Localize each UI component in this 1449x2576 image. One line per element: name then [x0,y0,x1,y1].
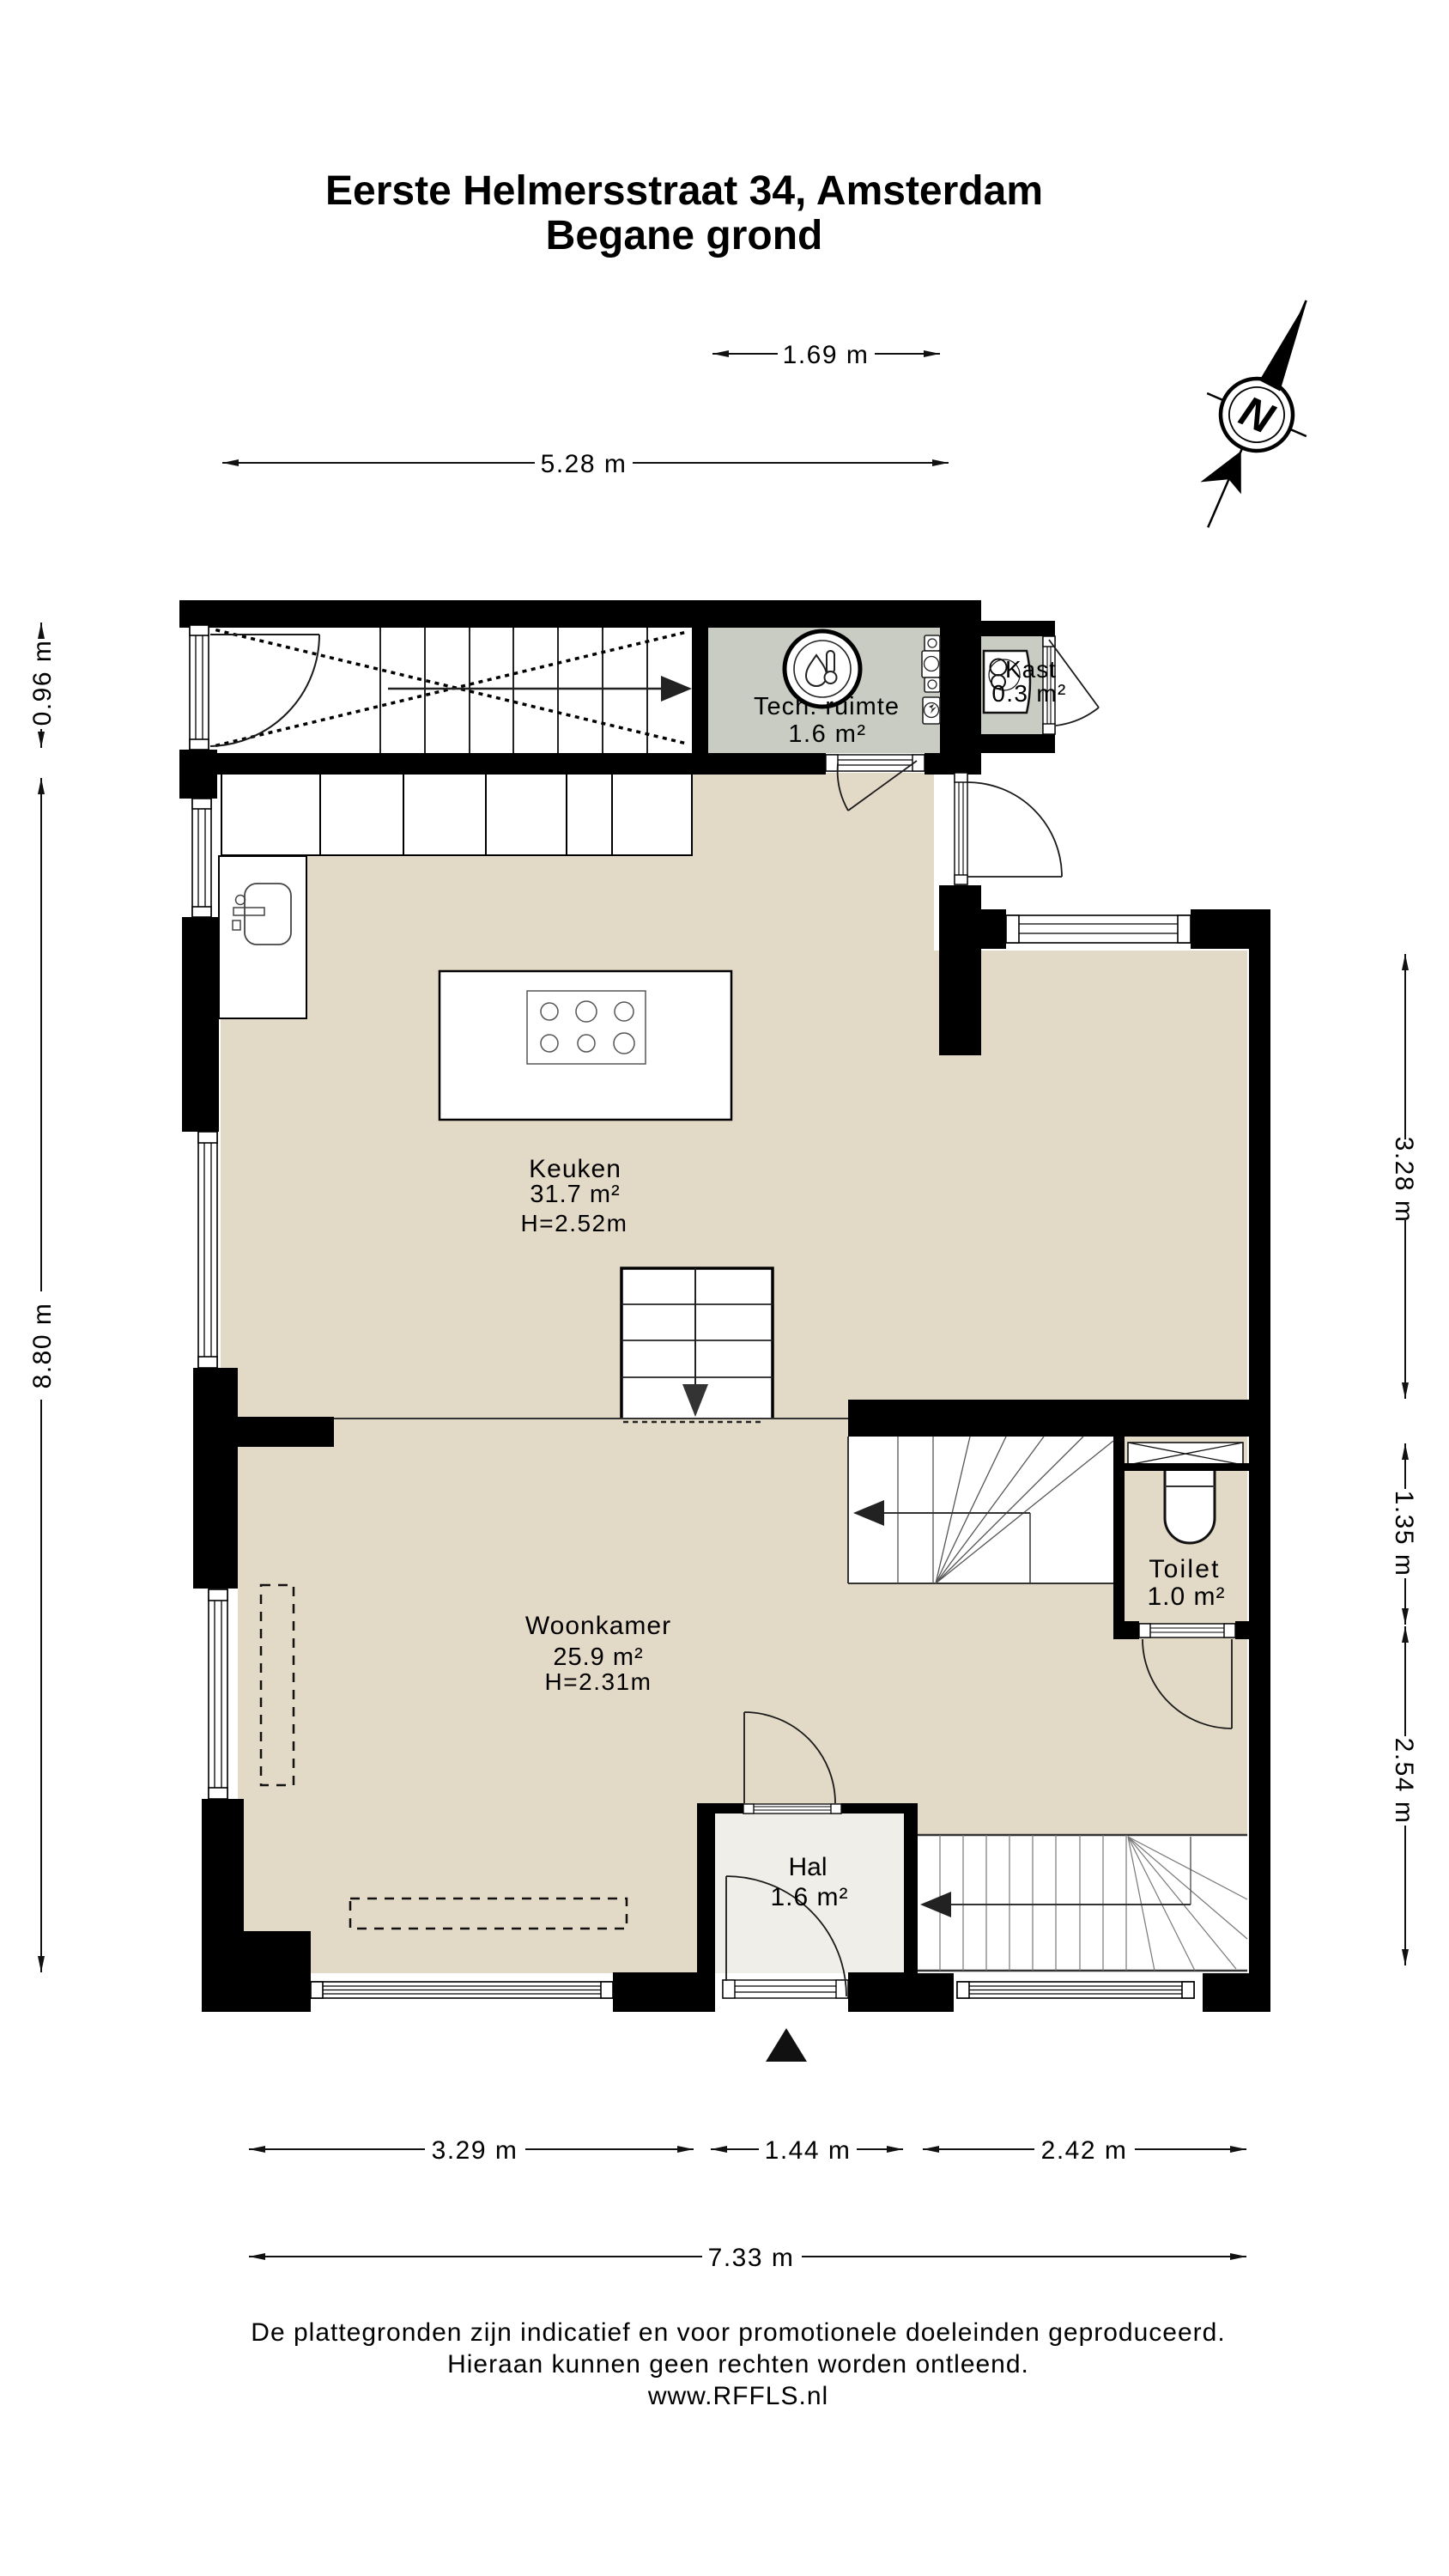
svg-text:1.35 m: 1.35 m [1390,1491,1418,1577]
svg-text:Keuken: Keuken [529,1155,621,1183]
svg-text:Eerste Helmersstraat 34, Amste: Eerste Helmersstraat 34, Amsterdam [325,168,1043,214]
svg-text:25.9 m²: 25.9 m² [553,1643,643,1671]
svg-text:1.69 m: 1.69 m [783,341,870,369]
svg-text:Kast: Kast [1005,656,1057,683]
svg-text:2.54 m: 2.54 m [1390,1738,1418,1825]
svg-text:0.96 m: 0.96 m [28,640,57,726]
svg-text:Begane grond: Begane grond [546,213,823,258]
svg-text:1.44 m: 1.44 m [765,2136,852,2165]
svg-text:7.33 m: 7.33 m [708,2244,795,2272]
svg-text:De plattegronden zijn indicati: De plattegronden zijn indicatief en voor… [251,2318,1225,2347]
svg-text:5.28 m: 5.28 m [541,450,627,478]
svg-text:3.29 m: 3.29 m [432,2136,518,2165]
svg-text:1.6 m²: 1.6 m² [788,720,866,748]
svg-text:Hal: Hal [788,1853,827,1881]
svg-text:1.0 m²: 1.0 m² [1147,1583,1225,1611]
svg-text:1.6 m²: 1.6 m² [770,1883,848,1911]
svg-text:H=2.31m: H=2.31m [545,1668,652,1695]
svg-text:Toilet: Toilet [1149,1555,1220,1583]
svg-text:8.80 m: 8.80 m [28,1303,57,1389]
svg-text:H=2.52m: H=2.52m [521,1210,628,1236]
svg-text:0.3 m²: 0.3 m² [991,680,1066,707]
svg-text:3.28 m: 3.28 m [1390,1137,1418,1224]
svg-text:www.RFFLS.nl: www.RFFLS.nl [647,2382,828,2410]
svg-text:2.42 m: 2.42 m [1041,2136,1128,2165]
svg-text:31.7 m²: 31.7 m² [530,1181,620,1208]
svg-text:Hieraan kunnen geen rechten wo: Hieraan kunnen geen rechten worden ontle… [447,2350,1029,2379]
svg-text:Woonkamer: Woonkamer [525,1612,671,1640]
svg-text:Tech. ruimte: Tech. ruimte [754,693,900,720]
